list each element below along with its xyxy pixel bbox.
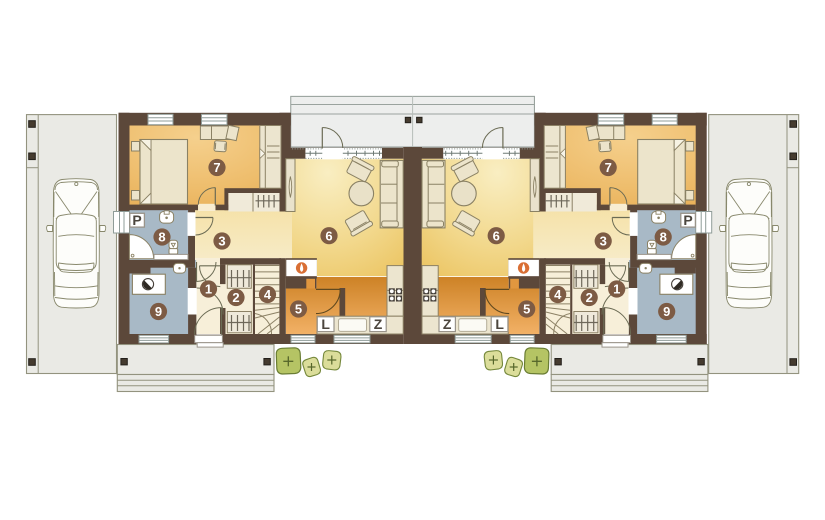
svg-text:4: 4 [554,287,562,302]
svg-text:7: 7 [213,160,220,175]
svg-text:L: L [495,316,504,332]
svg-text:2: 2 [586,290,593,305]
svg-text:4: 4 [264,287,272,302]
svg-text:Z: Z [374,316,383,332]
svg-text:2: 2 [232,290,239,305]
svg-text:6: 6 [493,228,500,243]
svg-text:8: 8 [158,230,165,245]
svg-text:3: 3 [218,234,225,249]
svg-text:6: 6 [325,228,332,243]
svg-text:Z: Z [443,316,452,332]
svg-text:P: P [132,212,141,228]
svg-text:3: 3 [600,234,607,249]
svg-text:7: 7 [605,160,612,175]
svg-text:P: P [683,212,692,228]
svg-text:5: 5 [295,302,302,317]
svg-text:L: L [321,316,330,332]
svg-text:8: 8 [660,230,667,245]
svg-text:1: 1 [205,282,212,297]
svg-text:1: 1 [613,282,620,297]
svg-text:5: 5 [523,302,530,317]
svg-text:9: 9 [155,304,162,319]
svg-text:9: 9 [663,304,670,319]
